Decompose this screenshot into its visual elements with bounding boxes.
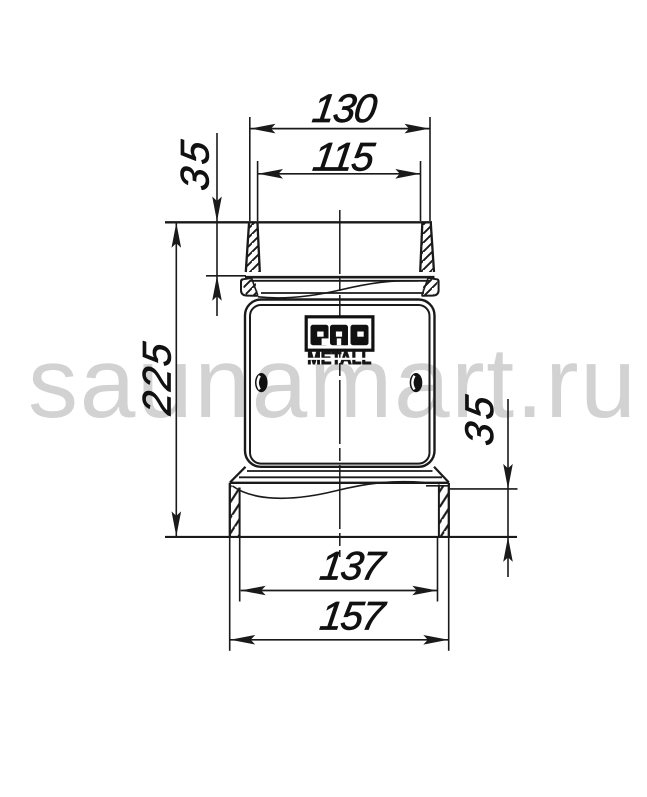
- svg-text:35: 35: [458, 389, 502, 448]
- svg-text:137: 137: [317, 545, 389, 589]
- svg-text:35: 35: [174, 134, 218, 193]
- svg-text:225: 225: [136, 338, 180, 418]
- svg-text:157: 157: [317, 595, 389, 639]
- svg-text:130: 130: [310, 87, 380, 131]
- svg-text:115: 115: [310, 136, 378, 180]
